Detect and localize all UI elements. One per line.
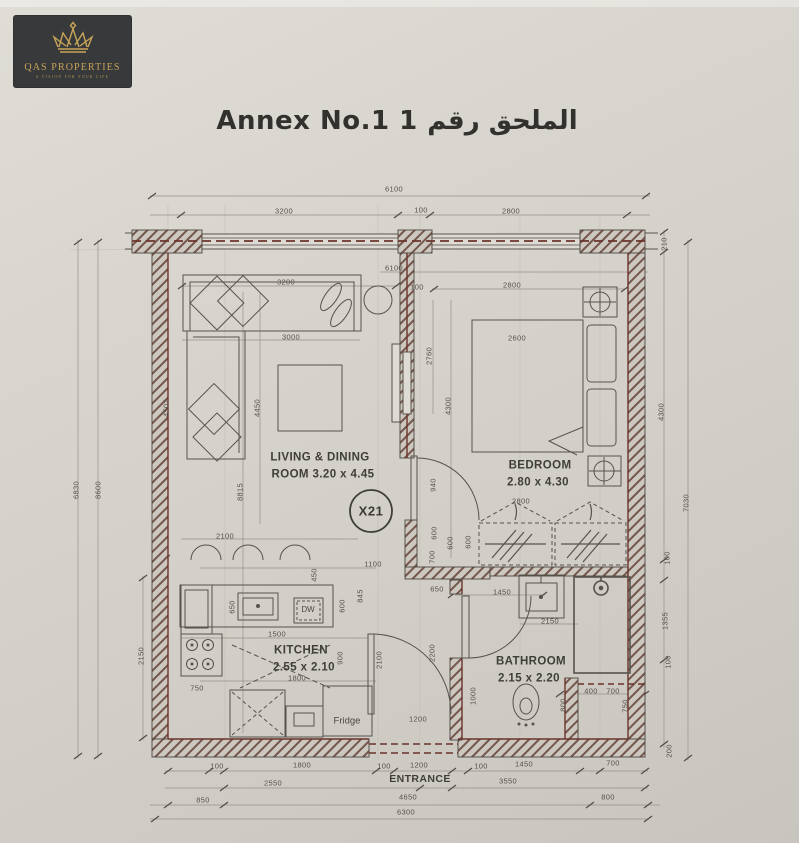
dimension-label: 2760 xyxy=(425,347,433,365)
fridge-box xyxy=(323,686,372,736)
dimension-label: 100 xyxy=(410,283,423,291)
dimension-label: 700 xyxy=(606,759,619,767)
dimension-label: 2150 xyxy=(541,617,559,625)
dimension-label: 4300 xyxy=(657,403,665,421)
dimension-label: 3550 xyxy=(499,777,517,785)
dimension-label: 600 xyxy=(464,535,472,548)
dimension-label: 600 xyxy=(338,599,346,612)
dimension-label: 1800 xyxy=(288,674,306,682)
dimension-label: 650 xyxy=(430,585,443,593)
dimension-label: 4450 xyxy=(253,399,261,417)
dimension-label: 4502 xyxy=(162,399,170,417)
dimension-label: 1800 xyxy=(293,761,311,769)
door-bathroom xyxy=(462,596,531,658)
dimension-label: 700 xyxy=(428,550,436,563)
floor-plan-sheet: QAS PROPERTIES A VISION FOR YOUR LIFE An… xyxy=(0,0,799,843)
door-entrance xyxy=(368,634,451,714)
dimension-label: 845 xyxy=(356,589,364,602)
room-label-bathroom-size: 2.15 x 2.20 xyxy=(498,673,560,685)
wall-bottom-left xyxy=(152,739,369,757)
dimension-label: 940 xyxy=(429,478,437,491)
dimension-label: 100 xyxy=(377,762,390,770)
bed xyxy=(472,320,616,455)
dimension-label: 3200 xyxy=(275,207,293,215)
dimension-label: 2100 xyxy=(375,651,383,669)
square-table xyxy=(278,365,342,431)
dimension-label: 1500 xyxy=(268,630,286,638)
dimension-label: 2550 xyxy=(264,779,282,787)
fridge-label: Fridge xyxy=(334,716,361,726)
dimension-label: 600 xyxy=(446,536,454,549)
dimension-label: 2200 xyxy=(428,644,436,662)
dimension-label: 2800 xyxy=(502,207,520,215)
dimension-label: 2800 xyxy=(512,497,530,505)
room-label-bedroom: BEDROOM xyxy=(509,460,572,472)
dimension-label: 4650 xyxy=(399,793,417,801)
room-label-kitchen-size: 2.55 x 2.10 xyxy=(273,662,335,674)
stool xyxy=(280,545,310,560)
dimension-label: 700 xyxy=(606,687,619,695)
stool xyxy=(233,545,263,560)
dimension-label: 3000 xyxy=(282,333,300,341)
dimension-label: 6830 xyxy=(72,481,80,499)
dimension-label: 3200 xyxy=(277,278,295,286)
dimension-label: 100 xyxy=(664,655,672,668)
dimension-label: 850 xyxy=(196,796,209,804)
room-label-bathroom: BATHROOM xyxy=(496,656,566,668)
room-label-living-size: ROOM 3.20 x 4.45 xyxy=(272,469,375,481)
dimension-label: 650 xyxy=(228,600,236,613)
dimension-label: 1450 xyxy=(493,588,511,596)
dimension-label: 2600 xyxy=(508,334,526,342)
dimension-label: 1100 xyxy=(364,560,381,568)
dimension-label: 600 xyxy=(430,526,438,539)
dimension-label: 2800 xyxy=(503,281,521,289)
room-label-kitchen: KITCHEN xyxy=(274,645,328,657)
dimension-label: 100 xyxy=(663,551,671,564)
dimension-label: 800 xyxy=(559,698,567,711)
wall-left xyxy=(152,253,168,739)
dimension-label: 400 xyxy=(584,687,597,695)
dimension-label: 200 xyxy=(665,744,673,757)
dimension-label: 750 xyxy=(621,699,629,712)
dimension-label: 100 xyxy=(210,762,223,770)
wardrobe xyxy=(479,502,626,565)
floor-plan-drawing xyxy=(0,0,799,843)
dimension-label: 2100 xyxy=(216,532,234,540)
stool xyxy=(191,545,221,560)
dimension-label: 8600 xyxy=(94,481,102,499)
nightstand-top xyxy=(583,287,617,317)
dimension-label: 1450 xyxy=(515,760,533,768)
dimension-label: 1200 xyxy=(409,715,427,723)
dimension-label: 100 xyxy=(474,762,487,770)
wall-bottom-right xyxy=(458,739,645,757)
nightstand-bottom xyxy=(588,456,621,486)
unit-badge: X21 xyxy=(359,504,384,519)
dimension-label: 7030 xyxy=(682,494,690,512)
dimension-label: 900 xyxy=(336,651,344,664)
dimension-label: 2150 xyxy=(137,647,145,665)
dimension-label: 6300 xyxy=(397,808,415,816)
door-bedroom xyxy=(411,456,479,520)
wall-bathroom-left xyxy=(450,658,462,740)
dimension-label: 210 xyxy=(660,237,668,250)
dimension-label: 100 xyxy=(414,206,427,214)
wall-hall xyxy=(405,567,490,579)
stove xyxy=(181,634,222,676)
room-label-living: LIVING & DINING xyxy=(270,452,369,464)
dimension-label: 750 xyxy=(190,684,203,692)
dimension-label: 6100 xyxy=(385,185,403,193)
room-label-bedroom-size: 2.80 x 4.30 xyxy=(507,477,569,489)
dimension-label: 450 xyxy=(310,568,318,581)
walls xyxy=(125,230,658,757)
tv-panel xyxy=(392,344,400,422)
dimension-label: 1355 xyxy=(661,612,669,630)
kitchen-counter xyxy=(180,545,333,634)
dishwasher-label: DW xyxy=(301,606,314,614)
sofa xyxy=(183,275,361,461)
shower xyxy=(574,577,630,673)
dimension-label: 800 xyxy=(601,793,614,801)
dimension-label: 6100 xyxy=(385,264,403,272)
dimension-label: 1200 xyxy=(410,761,428,769)
room-label-entrance: ENTRANCE xyxy=(389,774,451,785)
toilet xyxy=(513,684,539,726)
bathroom-sink xyxy=(519,575,564,618)
dimension-label: 1000 xyxy=(469,687,477,705)
wall-shelf xyxy=(403,352,411,414)
dimension-label: 4300 xyxy=(444,397,452,415)
dimension-label: 8815 xyxy=(236,483,244,501)
